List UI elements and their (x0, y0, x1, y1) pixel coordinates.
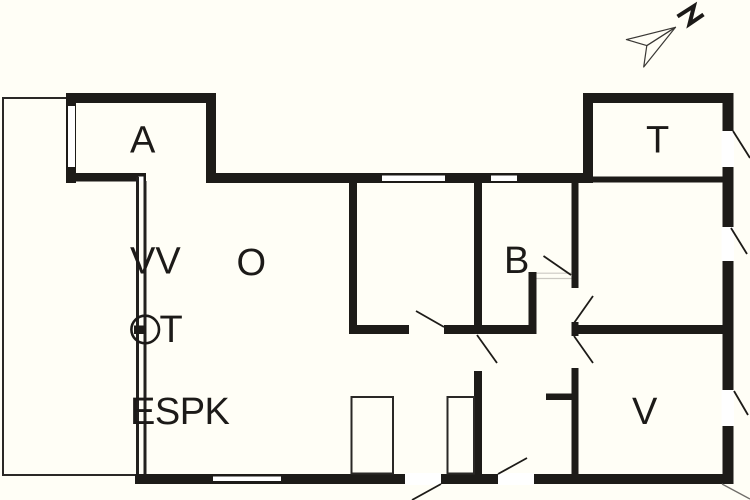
svg-text:B: B (504, 240, 529, 282)
svg-text:O: O (237, 242, 267, 284)
svg-text:A: A (130, 120, 156, 162)
svg-text:T: T (160, 309, 183, 351)
svg-text:V: V (632, 391, 658, 433)
svg-text:VV: VV (130, 241, 181, 283)
svg-text:ESPK: ESPK (130, 391, 230, 433)
svg-text:T: T (646, 120, 669, 162)
